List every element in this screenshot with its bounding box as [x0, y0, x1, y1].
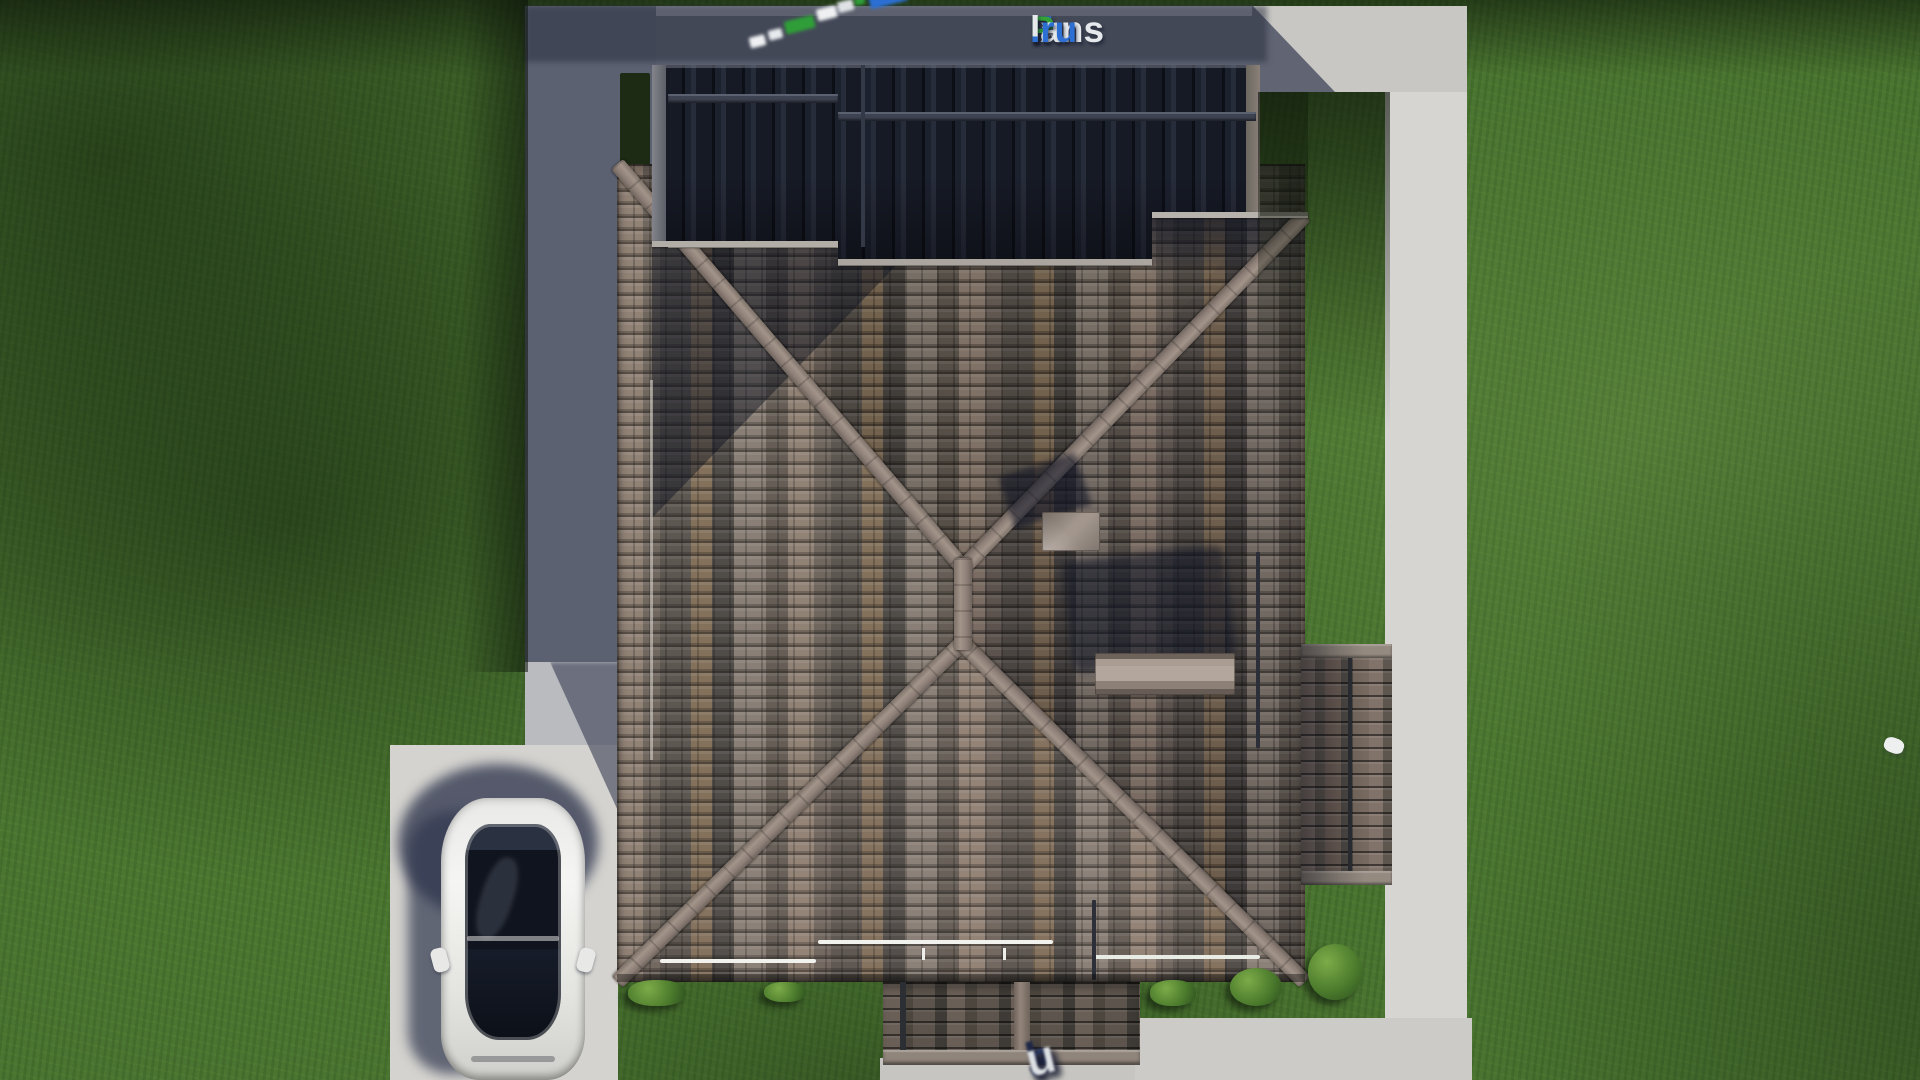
bottom-eave-shadow	[617, 974, 1305, 982]
left-eave-highlight	[650, 380, 653, 760]
gutter-line-2	[818, 940, 1053, 944]
snow-guard-bracket	[922, 948, 925, 960]
ridge-center	[954, 558, 972, 650]
main-hip-roof	[617, 164, 1305, 982]
dark-roof-top-edge	[652, 65, 1260, 68]
annex-roof	[1301, 644, 1392, 885]
gutter-line-3	[1093, 955, 1260, 959]
fragment-block-green	[784, 15, 816, 35]
fragment-block-white	[767, 28, 783, 41]
white-car	[441, 798, 585, 1080]
render-viewport: FixPlans.ru lans.ru	[0, 0, 1920, 1080]
bush	[1230, 968, 1282, 1006]
fragment-block-white	[748, 34, 766, 49]
fragment-block-white	[837, 0, 855, 13]
fragment-block-white	[816, 5, 838, 21]
porch-cap	[883, 1050, 1140, 1065]
terrace-paving	[1135, 1018, 1472, 1080]
dark-roof-fascia-left	[652, 65, 666, 247]
snow-guard-bracket	[1003, 948, 1006, 960]
porch-roof-tiles	[883, 982, 1140, 1052]
dark-roof-eave-2	[838, 259, 1152, 265]
bush	[1308, 944, 1362, 1000]
dark-roof-ridge-1	[668, 94, 838, 103]
front-trim	[471, 1056, 555, 1062]
fragment-block-blue	[864, 0, 908, 9]
lawn-shadow-left-of-path	[462, 0, 528, 672]
bush	[1150, 980, 1196, 1006]
chimney-small	[1042, 512, 1100, 551]
downpipe-bottom	[1092, 900, 1096, 980]
dark-roof-pipe	[861, 65, 865, 247]
lawn-shadow-roof-corner	[1260, 92, 1308, 216]
bush	[764, 982, 806, 1002]
dark-roof-eave-1	[652, 241, 838, 247]
annex-shadow	[1301, 644, 1392, 885]
gutter-line-1	[660, 959, 816, 963]
porch-roof	[883, 982, 1140, 1065]
right-path	[1385, 92, 1467, 1020]
shaded-grass-sliver	[620, 73, 650, 165]
chimney-large	[1095, 653, 1235, 695]
bush	[628, 980, 686, 1006]
dark-roof-ridge-2	[838, 112, 1256, 121]
fragment-block-green	[854, 0, 866, 6]
roof-bar	[467, 936, 559, 941]
logo-segment: .ru	[1030, 8, 1077, 52]
downpipe-right	[1256, 552, 1260, 748]
porch-gutter	[900, 982, 906, 1052]
